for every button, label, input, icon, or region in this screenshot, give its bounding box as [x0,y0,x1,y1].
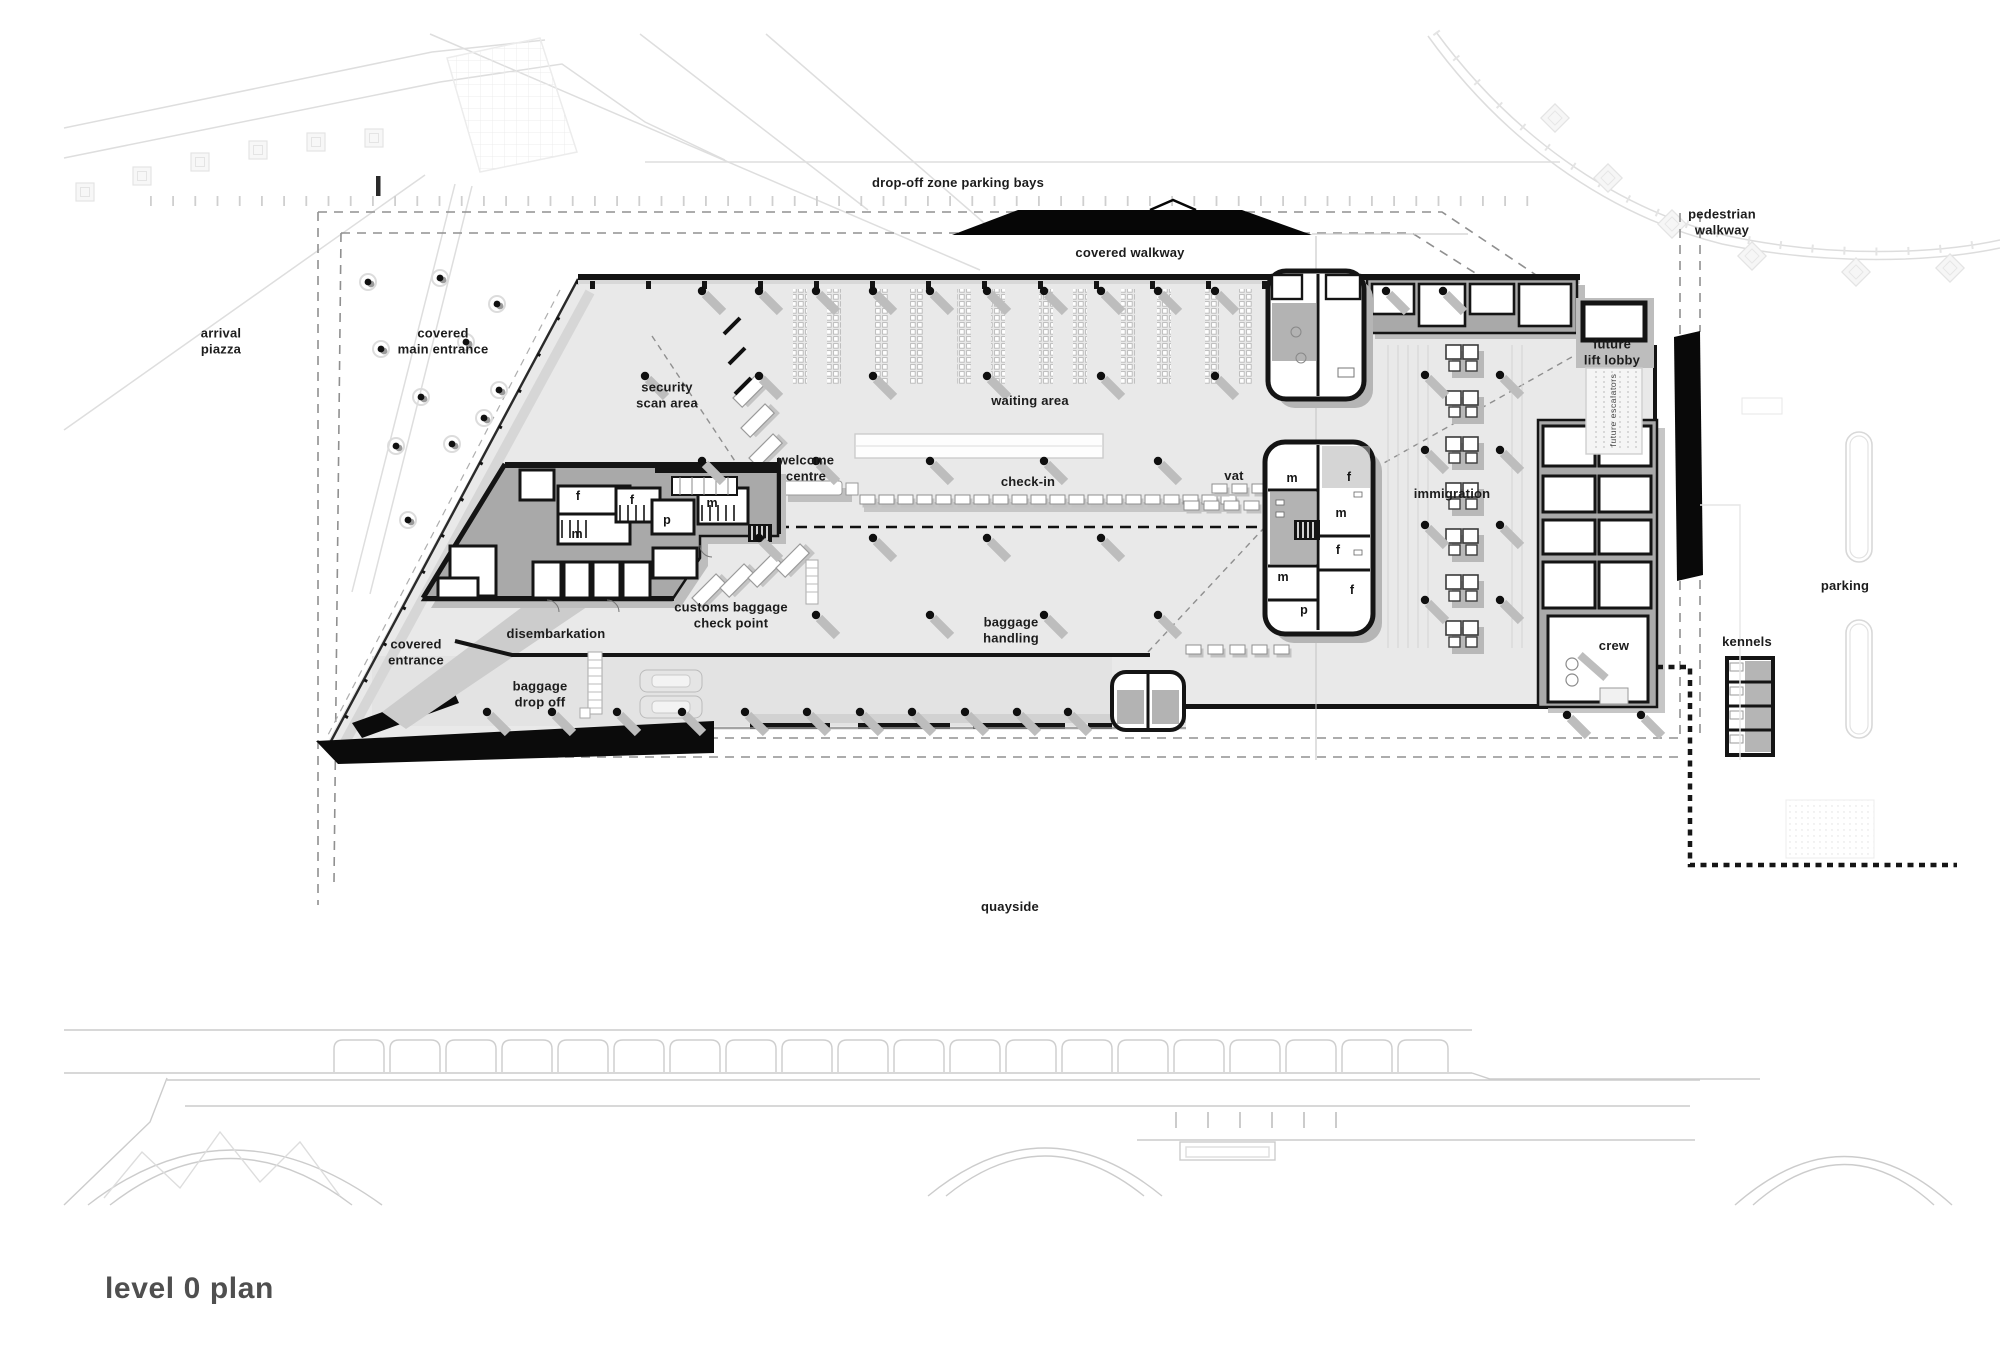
label-future-lift-lobby: future lift lobby [1584,336,1640,367]
room-letter-f: f [576,489,580,503]
label-customs-baggage: customs baggage check point [674,599,788,630]
label-vat: vat [1224,468,1243,484]
room-letter-f: f [1336,543,1340,557]
label-parking: parking [1821,578,1869,594]
label-check-in: check-in [1001,474,1055,490]
label-kennels: kennels [1722,634,1772,650]
label-arrival-piazza: arrival piazza [201,325,241,356]
upper-restroom-pod [1268,271,1373,408]
label-welcome-centre: welcome centre [778,452,834,483]
room-letter-p: p [663,513,671,527]
vat-restroom-pod [1265,442,1382,643]
room-letter-m: m [571,527,582,541]
quayside-ship [64,1030,1952,1205]
label-baggage-drop-off: baggage drop off [513,678,568,709]
label-crew: crew [1599,638,1629,654]
label-future-escalators: future escalators [1608,373,1618,446]
room-letter-f: f [630,493,634,507]
context-trees-left [76,129,383,201]
room-letter-f: f [1350,583,1354,597]
kennels-block [1727,658,1773,755]
room-letter-m: m [706,496,717,510]
label-covered-main-entrance: covered main entrance [398,325,489,356]
label-quayside: quayside [981,899,1039,915]
room-letter-f: f [1347,470,1351,484]
drawing-title: level 0 plan [105,1272,274,1306]
label-security-scan-area: security scan area [636,379,698,410]
room-letter-m: m [1286,471,1297,485]
quay-fenders [334,1040,1448,1072]
label-immigration: immigration [1414,486,1491,502]
east-canopy-bar [1674,331,1703,581]
bottom-exit-pod [1112,672,1184,730]
floor-plan-page: drop-off zone parking bays pedestrian wa… [0,0,2000,1358]
label-waiting-area: waiting area [991,393,1069,409]
welcome-centre-desk [780,481,858,502]
room-letter-p: p [1300,603,1308,617]
label-pedestrian-walkway: pedestrian walkway [1688,206,1756,237]
label-dropoff-zone: drop-off zone parking bays [872,175,1044,191]
label-baggage-handling: baggage handling [983,614,1039,645]
room-letter-m: m [1335,506,1346,520]
label-covered-entrance: covered entrance [388,636,444,667]
label-covered-walkway: covered walkway [1075,245,1184,261]
flag-pole-marker [376,176,381,196]
room-letter-m: m [1277,570,1288,584]
right-services-block [1538,420,1665,713]
covered-walkway-canopy [952,200,1468,235]
label-disembarkation: disembarkation [507,626,606,642]
plan-drawing [0,0,2000,1358]
